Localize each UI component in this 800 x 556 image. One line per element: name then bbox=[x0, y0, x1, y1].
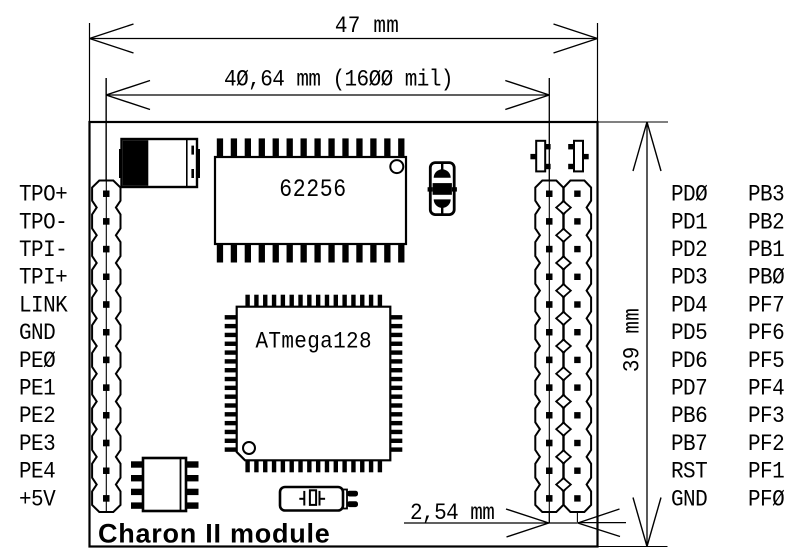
svg-text:PE3: PE3 bbox=[19, 431, 55, 457]
svg-text:PBØ: PBØ bbox=[748, 265, 784, 291]
svg-text:47 mm: 47 mm bbox=[335, 13, 399, 39]
svg-text:PD1: PD1 bbox=[671, 209, 707, 235]
svg-text:PB1: PB1 bbox=[748, 237, 784, 263]
svg-text:GND: GND bbox=[671, 486, 707, 512]
svg-text:PEØ: PEØ bbox=[19, 348, 55, 374]
svg-text:PF6: PF6 bbox=[748, 320, 784, 346]
svg-text:PD4: PD4 bbox=[671, 293, 707, 319]
svg-text:PD3: PD3 bbox=[671, 265, 707, 291]
svg-text:PF1: PF1 bbox=[748, 459, 784, 485]
svg-text:PF3: PF3 bbox=[748, 403, 784, 429]
svg-text:PF4: PF4 bbox=[748, 376, 784, 402]
svg-text:Charon II module: Charon II module bbox=[98, 519, 331, 549]
svg-text:PD2: PD2 bbox=[671, 237, 707, 263]
svg-text:PD6: PD6 bbox=[671, 348, 707, 374]
svg-text:GND: GND bbox=[19, 320, 55, 346]
svg-text:PF2: PF2 bbox=[748, 431, 784, 457]
svg-text:+5V: +5V bbox=[19, 486, 56, 512]
svg-text:RST: RST bbox=[671, 459, 707, 485]
svg-text:PD7: PD7 bbox=[671, 376, 707, 402]
svg-text:PF7: PF7 bbox=[748, 293, 784, 319]
svg-text:LINK: LINK bbox=[19, 293, 68, 319]
svg-text:ATmega128: ATmega128 bbox=[255, 329, 372, 355]
svg-text:PFØ: PFØ bbox=[748, 486, 784, 512]
svg-text:PDØ: PDØ bbox=[671, 182, 707, 208]
svg-text:PB6: PB6 bbox=[671, 403, 707, 429]
svg-text:TPO+: TPO+ bbox=[19, 182, 67, 208]
svg-text:TPI+: TPI+ bbox=[19, 265, 67, 291]
svg-text:PB3: PB3 bbox=[748, 182, 784, 208]
svg-text:TPI-: TPI- bbox=[19, 237, 67, 263]
svg-text:4Ø,64 mm (16ØØ mil): 4Ø,64 mm (16ØØ mil) bbox=[224, 67, 453, 93]
svg-text:PB2: PB2 bbox=[748, 209, 784, 235]
svg-text:PB7: PB7 bbox=[671, 431, 707, 457]
svg-text:39 mm: 39 mm bbox=[620, 308, 646, 372]
svg-text:PE2: PE2 bbox=[19, 403, 55, 429]
svg-text:PE4: PE4 bbox=[19, 459, 55, 485]
svg-text:62256: 62256 bbox=[279, 176, 346, 204]
svg-text:TPO-: TPO- bbox=[19, 209, 67, 235]
svg-text:PF5: PF5 bbox=[748, 348, 784, 374]
svg-text:PE1: PE1 bbox=[19, 376, 55, 402]
svg-text:PD5: PD5 bbox=[671, 320, 707, 346]
